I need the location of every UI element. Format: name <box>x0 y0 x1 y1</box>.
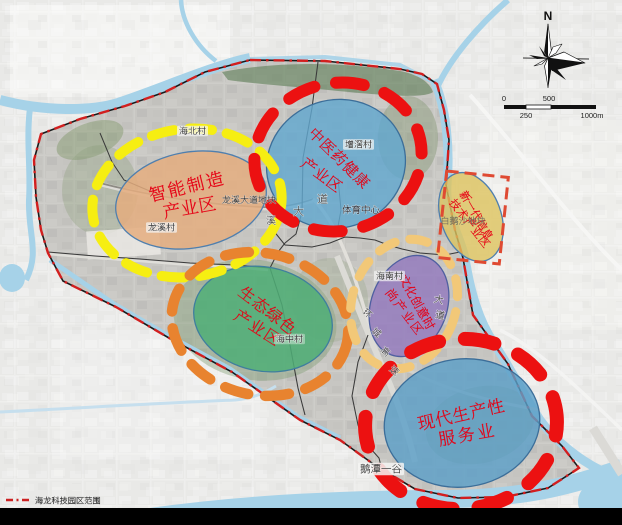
svg-text:250: 250 <box>520 111 533 120</box>
svg-text:1000m: 1000m <box>581 111 604 120</box>
svg-text:N: N <box>544 9 553 23</box>
svg-text:500: 500 <box>543 94 556 103</box>
svg-text:0: 0 <box>502 94 506 103</box>
